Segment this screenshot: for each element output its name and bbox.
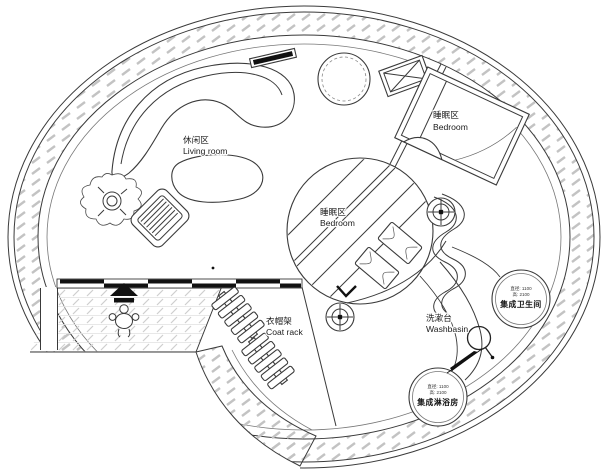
floor-dot xyxy=(212,267,215,270)
label-living-room-en: Living room xyxy=(183,146,227,156)
bathroom-pod: 直径: 1100 高: 2100 集成卫生间 xyxy=(492,270,550,328)
bathroom-pod-dim1: 直径: 1100 xyxy=(510,285,532,291)
shower-pod-dim2: 高: 2100 xyxy=(429,389,447,396)
shower-pod: 直径: 1100 高: 2100 集成淋浴房 xyxy=(409,368,467,426)
coat-rack-symbol xyxy=(240,330,297,391)
coffee-table xyxy=(172,155,263,203)
loft-bedroom-circle xyxy=(286,157,433,304)
label-coat-rack-en: Coat rack xyxy=(266,327,303,337)
bathroom-pod-name: 集成卫生间 xyxy=(499,299,541,309)
floor-plan-canvas: 直径: 1100 高: 2100 集成卫生间 直径: 1100 高: 2100 … xyxy=(0,0,611,473)
wall-niche-bar xyxy=(250,48,297,67)
door-swing-mark xyxy=(447,349,482,373)
label-bedroom-center-zh: 睡眠区 xyxy=(320,207,346,217)
sliding-door-wall xyxy=(57,279,302,288)
shower-pod-dim1: 直径: 1100 xyxy=(427,383,449,389)
shower-pod-name: 集成淋浴房 xyxy=(416,397,458,407)
label-living-room-zh: 休闲区 xyxy=(183,134,209,145)
label-coat-rack-zh: 衣帽架 xyxy=(266,315,292,326)
crosshair-symbol xyxy=(326,303,354,331)
crosshair-symbol xyxy=(427,198,455,226)
round-table xyxy=(318,53,370,105)
label-bedroom-upper-en: Bedroom xyxy=(433,122,468,132)
entry-door-opening xyxy=(40,287,58,351)
label-bedroom-upper-zh: 睡眠区 xyxy=(433,110,459,120)
floor-plan-drawing: 直径: 1100 高: 2100 集成卫生间 直径: 1100 高: 2100 … xyxy=(0,0,611,473)
bathroom-pod-dim2: 高: 2100 xyxy=(512,291,530,298)
label-washbasin-zh: 洗漱台 xyxy=(426,312,452,323)
label-bedroom-center-en: Bedroom xyxy=(320,218,355,228)
label-washbasin-en: Washbasin xyxy=(426,324,468,334)
